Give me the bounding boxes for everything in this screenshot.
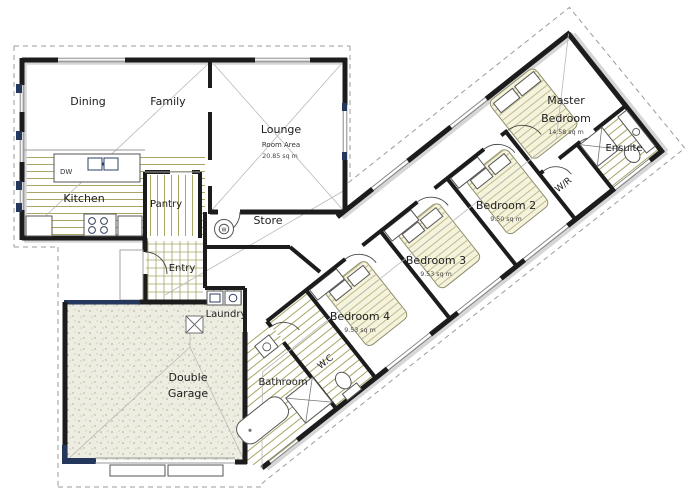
bench	[118, 216, 142, 236]
entry-post	[186, 316, 203, 333]
dishwasher-label: DW	[60, 168, 72, 176]
bedroom2-area: 9.50 sq m	[490, 216, 521, 223]
lounge-label: Lounge	[261, 123, 302, 136]
bench	[26, 216, 52, 236]
master-label-line1: Master	[547, 94, 585, 107]
window-sill	[16, 84, 22, 93]
sink	[88, 158, 102, 170]
bathroom-label: Bathroom	[258, 377, 307, 388]
garage-label-line2: Garage	[168, 387, 209, 400]
store-label: Store	[253, 214, 282, 227]
sink	[104, 158, 118, 170]
dining-label: Dining	[70, 95, 106, 108]
lounge-subtitle: Room Area	[262, 141, 300, 149]
bedroom3-area: 9.53 sq m	[420, 271, 451, 278]
garage-door	[95, 458, 235, 476]
porch	[120, 250, 143, 300]
window-sill	[16, 181, 22, 190]
bedroom3-label: Bedroom 3	[406, 254, 466, 267]
garage-label-line1: Double	[169, 371, 208, 384]
ensuite-label: Ensuite	[605, 143, 642, 154]
window-sill	[16, 131, 22, 140]
lounge-area: 20.85 sq m	[262, 153, 297, 160]
family-label: Family	[150, 95, 186, 108]
garage-north-wall	[64, 300, 142, 305]
floor-plan: Dining Family Lounge Room Area 20.85 sq …	[0, 0, 700, 500]
master-area: 14.58 sq m	[548, 129, 583, 136]
master-label-line2: Bedroom	[541, 112, 591, 125]
bedroom4-label: Bedroom 4	[330, 310, 390, 323]
kitchen-label: Kitchen	[63, 192, 104, 205]
bedroom4-area: 9.53 sq m	[344, 327, 375, 334]
laundry-label: Laundry	[206, 309, 247, 320]
window-sill	[16, 203, 22, 212]
bedroom2-label: Bedroom 2	[476, 199, 536, 212]
entry-label: Entry	[169, 263, 196, 274]
pantry-label: Pantry	[150, 199, 182, 210]
window-sill	[342, 152, 347, 160]
faucet	[102, 163, 105, 166]
washing-machine	[225, 291, 241, 305]
floor-plan-drawing: Dining Family Lounge Room Area 20.85 sq …	[0, 0, 700, 500]
wr-label: W/R	[554, 176, 574, 195]
stove	[84, 214, 116, 236]
water-heater-label: W	[222, 228, 227, 234]
garage-floor	[67, 304, 243, 460]
window-sill	[342, 103, 347, 111]
